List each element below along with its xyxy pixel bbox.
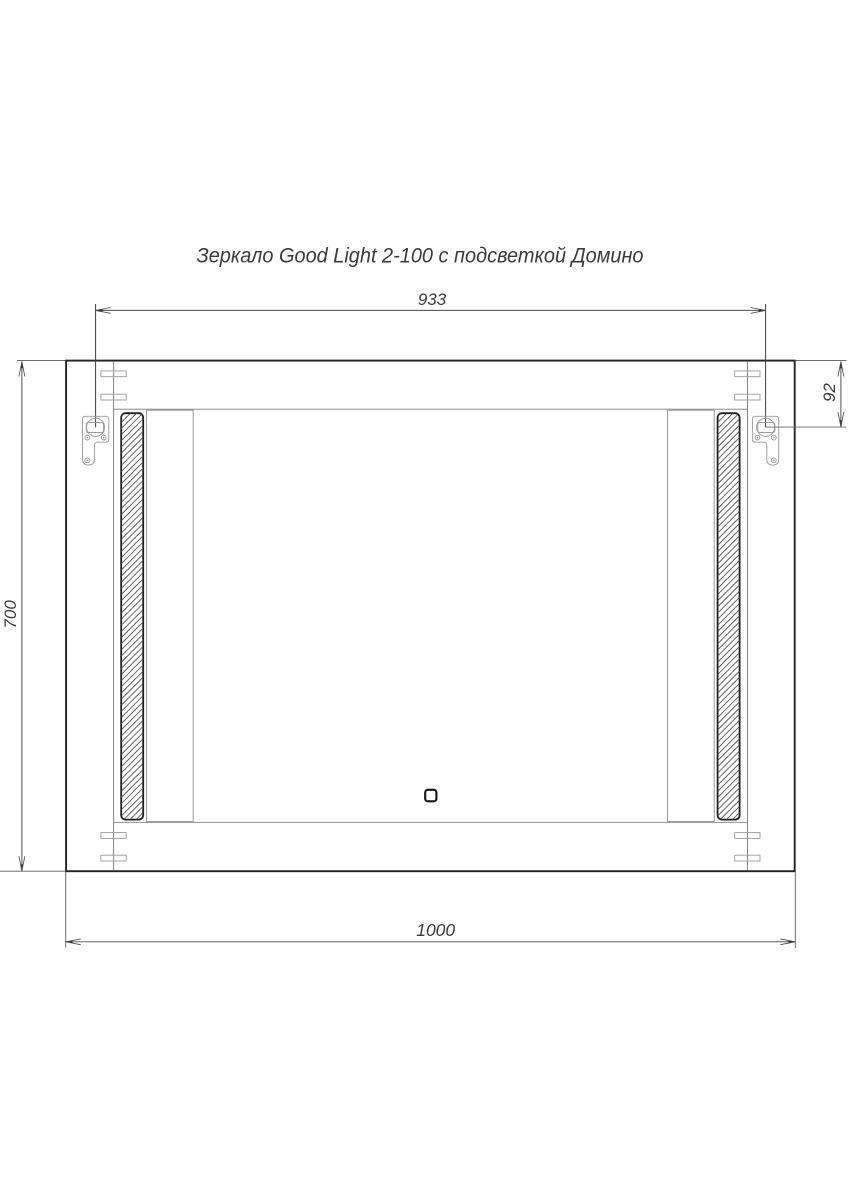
svg-text:92: 92 bbox=[820, 383, 839, 402]
svg-text:1000: 1000 bbox=[416, 920, 455, 940]
svg-text:700: 700 bbox=[1, 600, 20, 629]
svg-text:933: 933 bbox=[418, 290, 447, 309]
svg-text:Зеркало Good Light 2-100 с под: Зеркало Good Light 2-100 с подсветкой До… bbox=[197, 245, 644, 268]
